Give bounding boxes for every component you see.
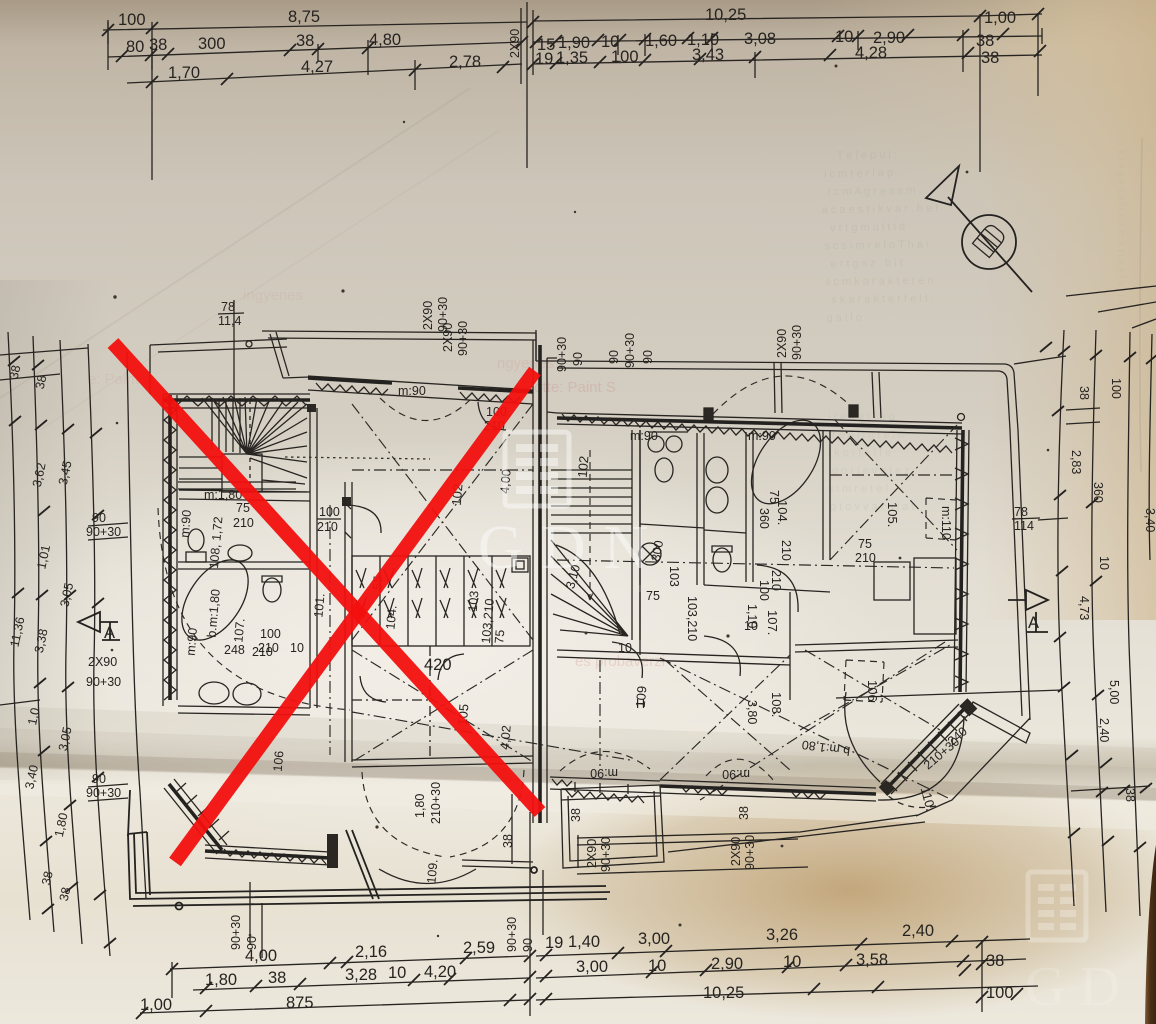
svg-text:210+30: 210+30 <box>429 782 443 824</box>
svg-text:T e l e p u l :: T e l e p u l : <box>837 149 898 162</box>
svg-text:10: 10 <box>648 957 666 975</box>
svg-text:es probaverzi: es probaverzi <box>575 653 665 670</box>
svg-text:g a l l o: g a l l o <box>826 312 862 325</box>
svg-text:103,210: 103,210 <box>685 596 699 641</box>
svg-text:3,08: 3,08 <box>744 30 776 48</box>
svg-text:75: 75 <box>236 501 250 515</box>
svg-text:4,80: 4,80 <box>369 31 401 49</box>
svg-text:4,73: 4,73 <box>1077 596 1091 620</box>
svg-text:90+30: 90+30 <box>229 915 243 950</box>
svg-text:2,40: 2,40 <box>1097 718 1111 742</box>
svg-text:2X90: 2X90 <box>441 323 455 352</box>
svg-text:38: 38 <box>7 364 24 381</box>
svg-text:v r t g m u l t i d: v r t g m u l t i d <box>830 221 905 234</box>
svg-text:8,75: 8,75 <box>288 8 320 26</box>
svg-text:3,00: 3,00 <box>638 930 670 948</box>
svg-text:H: H <box>636 697 645 711</box>
svg-text:103: 103 <box>466 590 482 612</box>
svg-text:2X90: 2X90 <box>775 329 789 358</box>
svg-text:248: 248 <box>224 643 245 657</box>
svg-text:3,80: 3,80 <box>745 700 759 724</box>
svg-text:GDN: GDN <box>478 514 666 582</box>
svg-text:100: 100 <box>1109 378 1123 399</box>
svg-text:38: 38 <box>501 834 515 848</box>
svg-text:38: 38 <box>57 886 74 903</box>
svg-text:300: 300 <box>198 35 226 53</box>
svg-text:90+30: 90+30 <box>86 525 121 539</box>
svg-text:2,59: 2,59 <box>463 939 495 957</box>
svg-text:A: A <box>104 624 115 642</box>
svg-text:s c s i m r e l o T h a: s c s i m r e l o T h a r <box>824 238 930 252</box>
svg-text:2,78: 2,78 <box>449 53 481 71</box>
svg-text:3,40: 3,40 <box>1143 508 1156 532</box>
svg-text:s i m r e t e l: s i m r e t e l <box>828 483 888 495</box>
svg-text:210: 210 <box>258 641 279 655</box>
svg-text:90+30: 90+30 <box>86 786 121 800</box>
svg-text:m:90: m:90 <box>178 509 194 538</box>
svg-text:1,70: 1,70 <box>168 64 200 82</box>
svg-text:2X90: 2X90 <box>421 301 435 330</box>
svg-text:10: 10 <box>388 964 406 982</box>
svg-text:5,00: 5,00 <box>1107 680 1121 704</box>
svg-text:2X90: 2X90 <box>585 839 599 868</box>
svg-text:90: 90 <box>571 352 585 366</box>
svg-text:m:90: m:90 <box>184 627 200 656</box>
svg-text:38: 38 <box>1123 788 1137 802</box>
svg-text:3,28: 3,28 <box>345 966 377 984</box>
svg-text:2X90: 2X90 <box>508 29 522 58</box>
svg-text:210: 210 <box>779 540 793 561</box>
svg-text:90: 90 <box>641 350 655 364</box>
svg-text:90+30: 90+30 <box>599 837 613 872</box>
svg-text:38: 38 <box>268 969 286 987</box>
svg-text:1,35: 1,35 <box>556 49 588 67</box>
svg-text:105.: 105. <box>885 502 900 527</box>
svg-text:90+30: 90+30 <box>790 325 804 360</box>
svg-text:38: 38 <box>976 32 994 50</box>
svg-text:1,60: 1,60 <box>645 32 677 50</box>
svg-text:100: 100 <box>118 11 146 29</box>
svg-text:4,02: 4,02 <box>498 725 514 751</box>
svg-text:360: 360 <box>1091 482 1105 503</box>
svg-text:1,80: 1,80 <box>205 971 237 989</box>
svg-text:m:110: m:110 <box>939 506 953 540</box>
svg-text:102: 102 <box>575 455 592 478</box>
svg-text:s k a r a k t e r f e l t .: s k a r a k t e r f e l t . <box>831 292 934 306</box>
svg-text:GD: GD <box>1025 956 1134 1018</box>
svg-text:75: 75 <box>858 537 872 551</box>
svg-text:75: 75 <box>492 629 507 644</box>
svg-text:106: 106 <box>271 750 287 772</box>
svg-text:100: 100 <box>757 580 771 601</box>
svg-text:210: 210 <box>855 551 876 565</box>
svg-text:2X90: 2X90 <box>88 655 117 669</box>
svg-text:80: 80 <box>126 38 144 56</box>
svg-text:4,20: 4,20 <box>424 963 456 981</box>
svg-text:10: 10 <box>1097 556 1111 570</box>
svg-text:90: 90 <box>92 772 106 786</box>
svg-text:108.: 108. <box>769 692 784 717</box>
svg-text:101.: 101. <box>311 593 327 618</box>
svg-text:90+30: 90+30 <box>555 337 569 372</box>
svg-text:e r t g s z . b i t: e r t g s z . b i t <box>830 257 902 270</box>
svg-text:90+30: 90+30 <box>505 917 519 952</box>
svg-text:2,40: 2,40 <box>902 922 934 940</box>
svg-text:104.: 104. <box>383 605 399 630</box>
svg-text:m:1,80: m:1,80 <box>204 488 242 502</box>
svg-text:2X90: 2X90 <box>729 837 743 866</box>
svg-text:1,40: 1,40 <box>568 933 600 951</box>
svg-text:10: 10 <box>835 28 853 46</box>
svg-text:38: 38 <box>981 49 999 67</box>
svg-text:A: A <box>1028 614 1039 632</box>
svg-text:38: 38 <box>1077 386 1091 400</box>
svg-text:2,90: 2,90 <box>711 955 743 973</box>
svg-text:75: 75 <box>646 589 660 603</box>
svg-text:38: 38 <box>296 32 314 50</box>
svg-text:ingyenes: ingyenes <box>243 287 303 304</box>
svg-text:k i e g e s z i t e s m e l: k i e g e s z i t e s m e l l e k l e t … <box>1115 150 1126 320</box>
svg-text:90: 90 <box>92 511 106 525</box>
svg-text:38: 38 <box>569 808 583 822</box>
svg-text:90+30: 90+30 <box>86 675 121 689</box>
svg-text:s c m k a r a k t e r e n: s c m k a r a k t e r e n <box>825 274 934 288</box>
svg-text:10,25: 10,25 <box>703 984 744 1002</box>
svg-text:100: 100 <box>260 627 281 641</box>
svg-text:90+30: 90+30 <box>743 835 757 870</box>
svg-text:100: 100 <box>986 984 1014 1002</box>
svg-text:19: 19 <box>535 50 553 68</box>
svg-text:i c m t e r l a p: i c m t e r l a p <box>824 167 893 180</box>
svg-text:3,43: 3,43 <box>692 46 724 64</box>
svg-text:875: 875 <box>286 994 314 1012</box>
svg-text:38: 38 <box>986 952 1004 970</box>
svg-text:2,16: 2,16 <box>355 943 387 961</box>
svg-text:210: 210 <box>233 516 254 530</box>
svg-text:fotte: Paint S: fotte: Paint S <box>530 379 616 396</box>
svg-text:t k e r f e l l e: t k e r f e l l e <box>828 447 891 459</box>
svg-text:360: 360 <box>757 508 771 529</box>
svg-text:38: 38 <box>737 806 751 820</box>
svg-text:ngyenes: ngyenes <box>497 355 554 372</box>
svg-text:m:90: m:90 <box>398 384 426 398</box>
svg-text:90: 90 <box>245 936 259 950</box>
svg-text:a c a e s t i k v a r .: a c a e s t i k v a r . h e t <box>822 202 939 216</box>
svg-text:r c m A g r e s s m .: r c m A g r e s s m . <box>827 185 921 199</box>
svg-text:107.: 107. <box>231 618 247 643</box>
svg-text:3,58: 3,58 <box>856 951 888 969</box>
svg-text:10,25: 10,25 <box>705 6 746 24</box>
svg-text:g t o v v a r o l a t: g t o v v a r o l a t <box>830 501 914 513</box>
svg-text:4,28: 4,28 <box>855 44 887 62</box>
svg-text:m:90: m:90 <box>590 766 618 780</box>
svg-text:11,4: 11,4 <box>218 314 241 328</box>
svg-text:1,00: 1,00 <box>140 996 172 1014</box>
svg-text:3,00: 3,00 <box>576 958 608 976</box>
svg-text:90: 90 <box>521 938 535 952</box>
svg-text:10: 10 <box>290 641 304 655</box>
svg-text:210: 210 <box>317 520 338 534</box>
svg-text:90+30: 90+30 <box>623 333 637 368</box>
svg-text:106: 106 <box>865 680 880 702</box>
svg-text:38: 38 <box>33 374 50 391</box>
svg-text:1,80: 1,80 <box>413 794 427 818</box>
svg-text:10: 10 <box>783 953 801 971</box>
svg-text:2,83: 2,83 <box>1069 450 1083 474</box>
svg-text:107.: 107. <box>765 610 780 635</box>
svg-text:4,27: 4,27 <box>301 58 333 76</box>
svg-text:109.: 109. <box>424 859 440 884</box>
svg-text:38: 38 <box>149 36 167 54</box>
svg-text:103: 103 <box>667 566 681 587</box>
svg-text:90: 90 <box>607 350 621 364</box>
svg-text:78: 78 <box>221 300 235 314</box>
svg-text:10: 10 <box>744 619 758 633</box>
svg-text:1,00: 1,00 <box>984 9 1016 27</box>
svg-text:210: 210 <box>769 570 783 591</box>
svg-text:420: 420 <box>424 656 452 674</box>
svg-text:100: 100 <box>611 48 639 66</box>
svg-text:3,26: 3,26 <box>766 926 798 944</box>
svg-text:19: 19 <box>545 934 563 952</box>
svg-text:90+30: 90+30 <box>456 321 470 356</box>
svg-text:114: 114 <box>1014 519 1034 533</box>
svg-text:75: 75 <box>767 490 781 504</box>
svg-text:m:90: m:90 <box>722 767 750 781</box>
svg-text:38: 38 <box>39 870 56 887</box>
